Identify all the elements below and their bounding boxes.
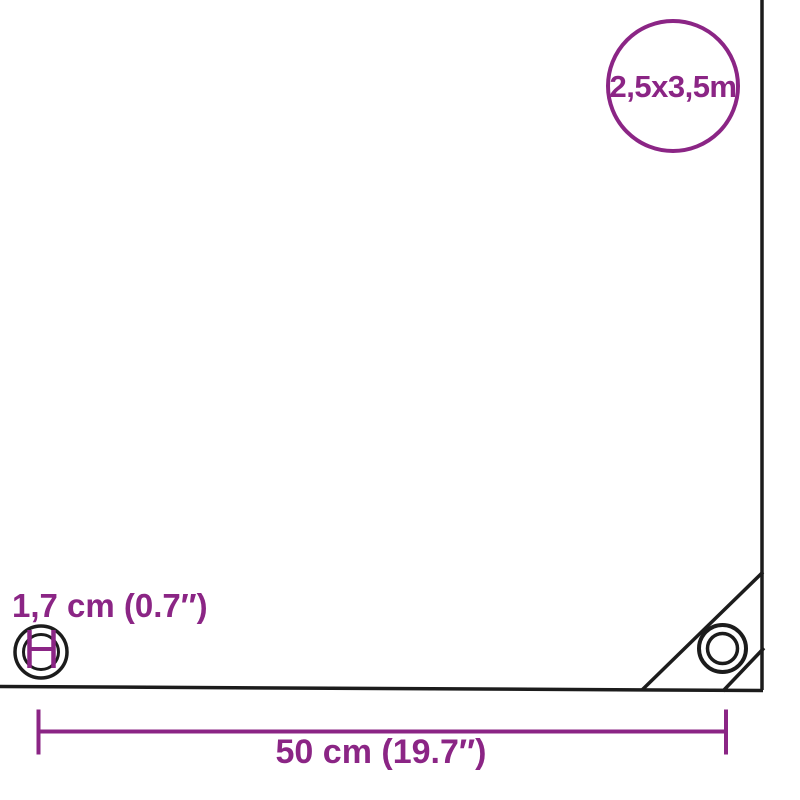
eyelet-diameter-detail: 1,7 cm (0.7″) xyxy=(12,587,208,678)
grommet-diameter-icon xyxy=(15,626,67,678)
corner-reinforcement xyxy=(642,572,764,691)
size-badge-label: 2,5x3,5m xyxy=(610,69,737,104)
eyelet-spacing-dimension: 50 cm (19.7″) xyxy=(39,710,727,772)
diagram-canvas: 2,5x3,5m 1,7 cm (0.7″) xyxy=(0,0,800,800)
tarp-bottom-edge xyxy=(0,687,763,691)
corner-seam-outer xyxy=(642,572,763,690)
eyelet-diameter-label: 1,7 cm (0.7″) xyxy=(12,587,208,624)
eyelet-spacing-label: 50 cm (19.7″) xyxy=(276,733,487,771)
tarpaulin-dimension-diagram: 2,5x3,5m 1,7 cm (0.7″) xyxy=(0,0,800,800)
corner-grommet-inner-ring xyxy=(708,634,738,664)
size-badge: 2,5x3,5m xyxy=(608,21,738,151)
